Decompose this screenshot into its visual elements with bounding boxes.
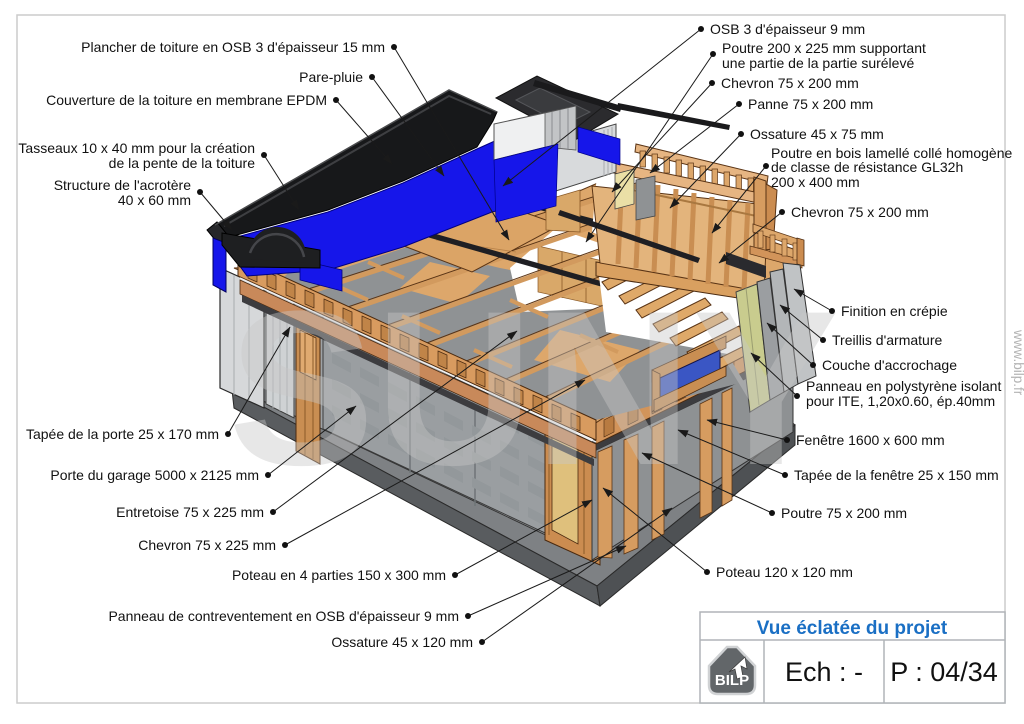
svg-text:www.bilp.fr: www.bilp.fr bbox=[1011, 329, 1024, 396]
svg-text:Structure de l'acrotère: Structure de l'acrotère bbox=[54, 177, 192, 193]
svg-text:SUNY: SUNY bbox=[228, 265, 839, 511]
svg-text:Treillis d'armature: Treillis d'armature bbox=[832, 332, 943, 348]
svg-text:Panneau en polystyrène isolant: Panneau en polystyrène isolant bbox=[806, 378, 1001, 394]
svg-text:Vue éclatée du projet: Vue éclatée du projet bbox=[757, 618, 948, 639]
svg-text:Poteau en 4 parties 150 x 300: Poteau en 4 parties 150 x 300 mm bbox=[232, 567, 446, 583]
svg-text:pour ITE, 1,20x0.60, ép.40mm: pour ITE, 1,20x0.60, ép.40mm bbox=[806, 393, 995, 409]
svg-text:une partie de la partie suréle: une partie de la partie surélevé bbox=[722, 55, 914, 71]
svg-text:Panne 75 x 200 mm: Panne 75 x 200 mm bbox=[748, 96, 873, 112]
svg-text:Finition en crépie: Finition en crépie bbox=[841, 303, 948, 319]
svg-text:Chevron 75 x 200 mm: Chevron 75 x 200 mm bbox=[721, 75, 859, 91]
svg-text:Couche d'accrochage: Couche d'accrochage bbox=[822, 357, 957, 373]
svg-text:Poteau 120 x 120 mm: Poteau 120 x 120 mm bbox=[716, 564, 853, 580]
svg-text:Panneau de contreventement en: Panneau de contreventement en OSB d'épai… bbox=[108, 608, 459, 624]
svg-text:Tapée de la porte 25 x 170 mm: Tapée de la porte 25 x 170 mm bbox=[26, 426, 219, 442]
svg-text:Fenêtre 1600 x 600 mm: Fenêtre 1600 x 600 mm bbox=[796, 432, 945, 448]
svg-text:Plancher de toiture en OSB 3 d: Plancher de toiture en OSB 3 d'épaisseur… bbox=[81, 39, 385, 55]
svg-text:Entretoise 75 x 225 mm: Entretoise 75 x 225 mm bbox=[116, 504, 264, 520]
svg-text:P : 04/34: P : 04/34 bbox=[890, 657, 998, 687]
svg-text:Chevron 75 x 200 mm: Chevron 75 x 200 mm bbox=[791, 204, 929, 220]
svg-text:Tasseaux 10 x 40 mm pour la cr: Tasseaux 10 x 40 mm pour la création bbox=[18, 140, 255, 156]
svg-text:de classe de résistance GL32h: de classe de résistance GL32h bbox=[771, 159, 963, 175]
svg-text:de la pente de la toiture: de la pente de la toiture bbox=[109, 155, 256, 171]
svg-text:Ossature 45 x 75 mm: Ossature 45 x 75 mm bbox=[750, 126, 884, 142]
svg-text:40 x 60 mm: 40 x 60 mm bbox=[118, 192, 191, 208]
svg-text:200 x 400 mm: 200 x 400 mm bbox=[771, 174, 860, 190]
svg-text:Ossature 45 x 120 mm: Ossature 45 x 120 mm bbox=[331, 634, 473, 650]
svg-text:Poutre 75 x 200 mm: Poutre 75 x 200 mm bbox=[781, 505, 907, 521]
svg-text:Porte du garage 5000 x 2125 mm: Porte du garage 5000 x 2125 mm bbox=[50, 467, 259, 483]
svg-text:OSB 3 d'épaisseur 9 mm: OSB 3 d'épaisseur 9 mm bbox=[710, 21, 865, 37]
svg-text:BILP: BILP bbox=[715, 672, 749, 689]
svg-text:Chevron 75 x 225 mm: Chevron 75 x 225 mm bbox=[138, 537, 276, 553]
svg-text:Pare-pluie: Pare-pluie bbox=[299, 69, 363, 85]
svg-text:Tapée de la fenêtre 25 x 150 m: Tapée de la fenêtre 25 x 150 mm bbox=[794, 467, 999, 483]
svg-text:Poutre 200 x 225 mm supportant: Poutre 200 x 225 mm supportant bbox=[722, 40, 926, 56]
svg-text:Ech : -: Ech : - bbox=[785, 657, 863, 687]
svg-text:Couverture de la toiture en me: Couverture de la toiture en membrane EPD… bbox=[46, 92, 327, 108]
